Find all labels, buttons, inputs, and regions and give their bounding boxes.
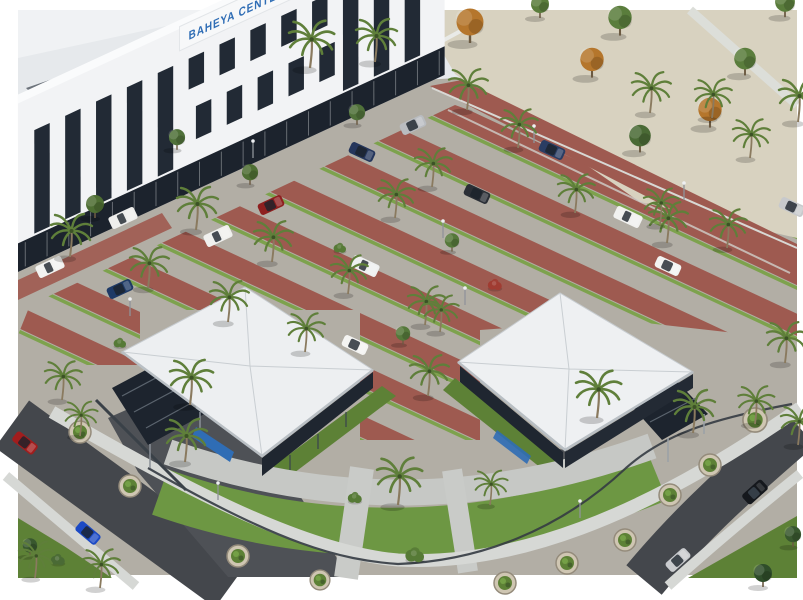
architectural-rendering: BAHEYA CENTER — [0, 0, 803, 600]
circular-planter — [659, 484, 681, 506]
circular-planter — [699, 454, 721, 476]
lawn-path-center — [346, 468, 362, 578]
circular-planter — [119, 475, 141, 497]
circular-planter — [310, 570, 330, 590]
circular-planter — [494, 572, 516, 594]
circular-planter — [556, 552, 578, 574]
circular-planter — [614, 529, 636, 551]
circular-planter — [227, 545, 249, 567]
scene-canvas: BAHEYA CENTER — [0, 0, 803, 600]
